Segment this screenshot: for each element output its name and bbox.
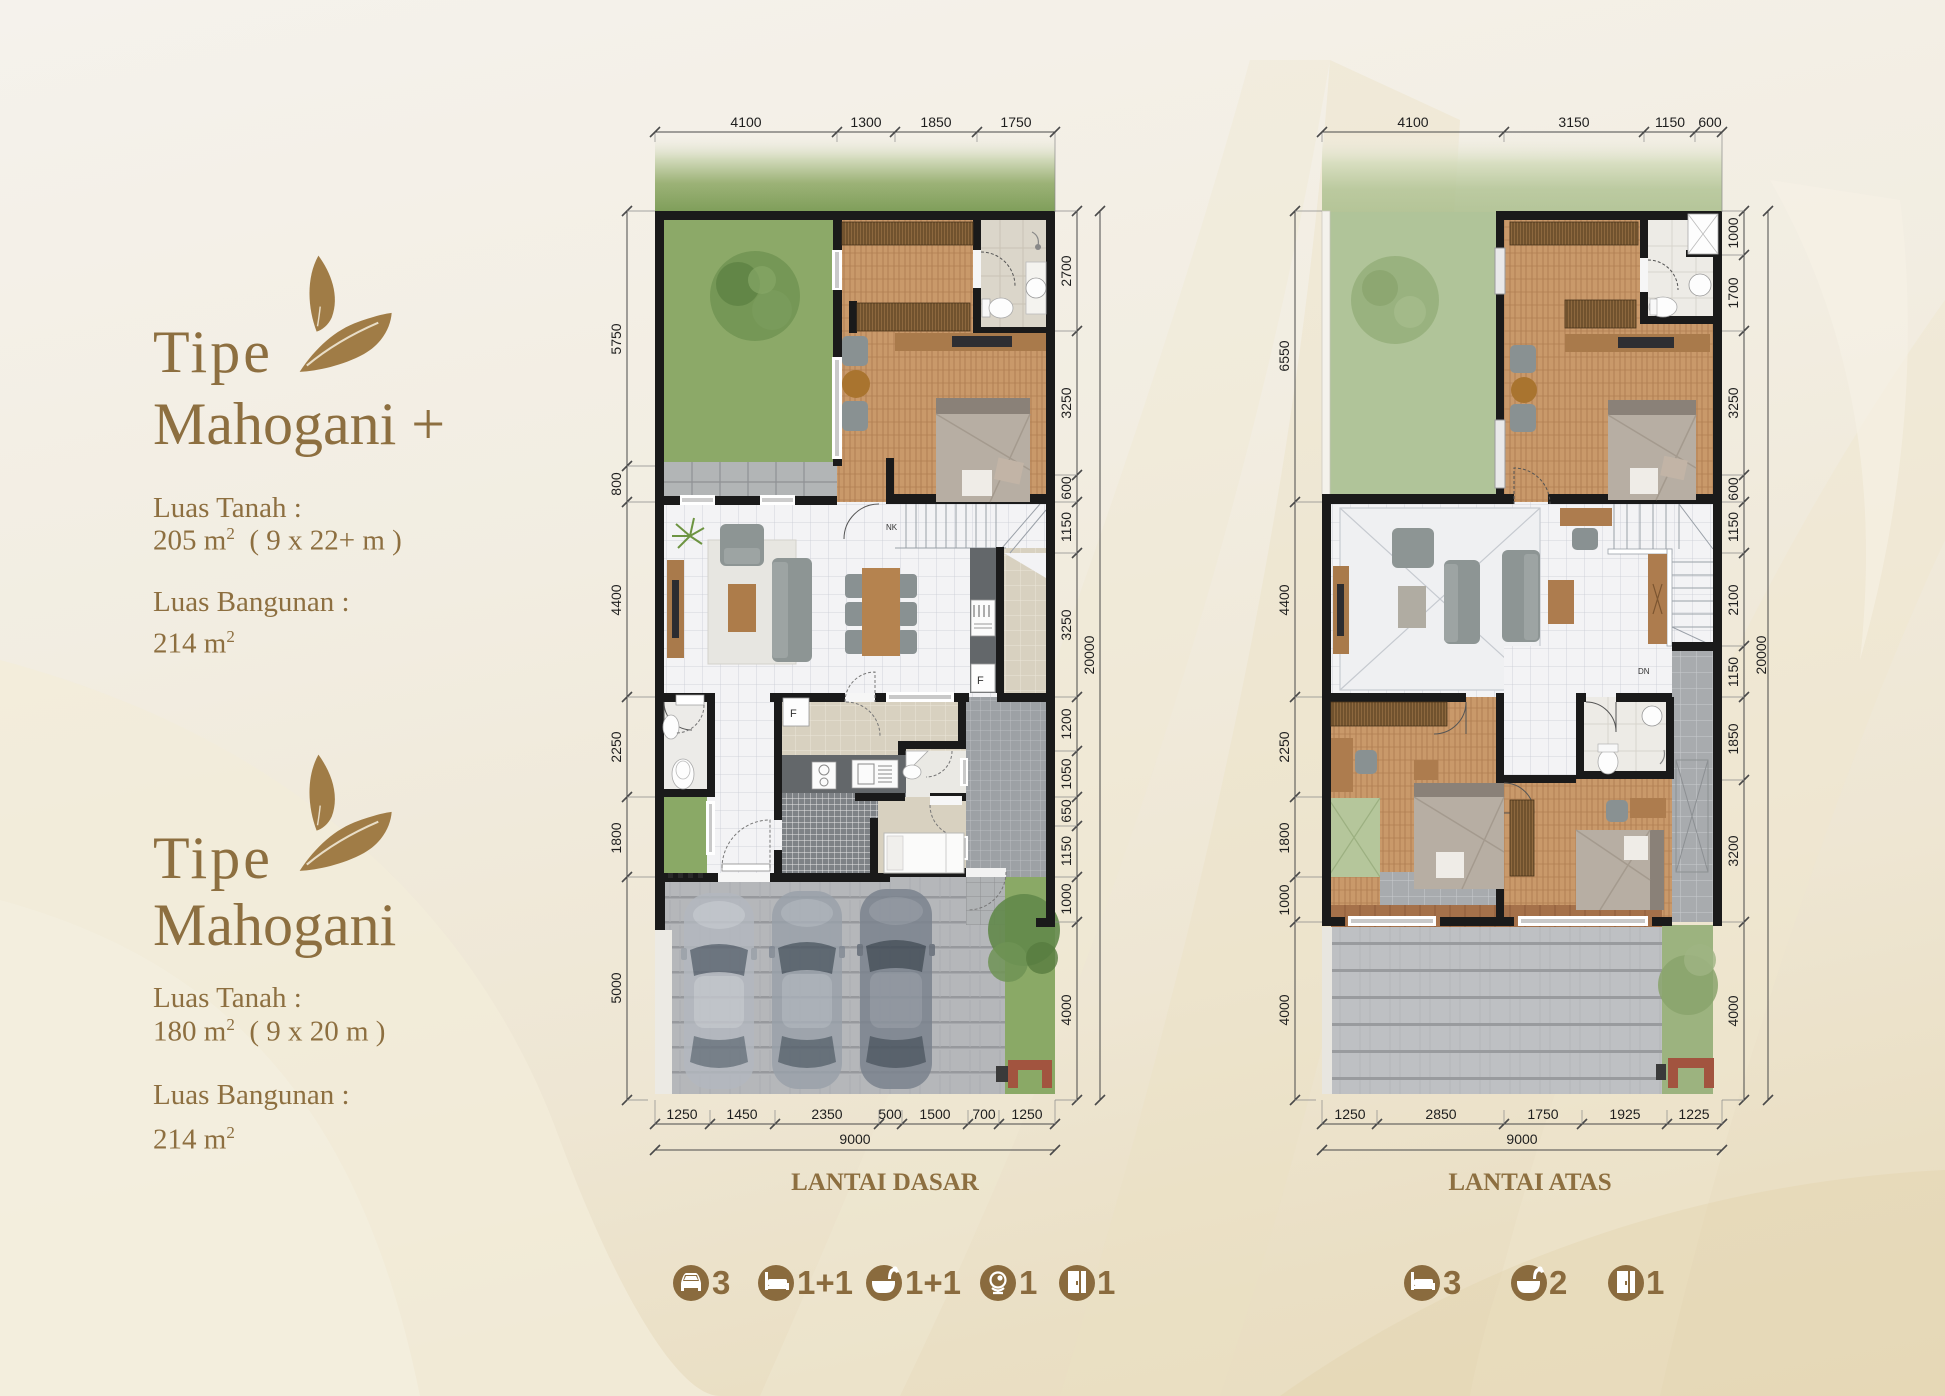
svg-text:1500: 1500: [919, 1106, 950, 1122]
svg-text:4000: 4000: [1058, 994, 1074, 1025]
svg-text:2700: 2700: [1058, 255, 1074, 286]
svg-text:4000: 4000: [1276, 994, 1292, 1025]
svg-text:3250: 3250: [1058, 387, 1074, 418]
svg-text:5000: 5000: [608, 972, 624, 1003]
svg-text:9000: 9000: [1506, 1131, 1537, 1147]
svg-text:3150: 3150: [1558, 114, 1589, 130]
svg-text:1750: 1750: [1527, 1106, 1558, 1122]
svg-text:1000: 1000: [1276, 884, 1292, 915]
svg-text:1800: 1800: [608, 822, 624, 853]
svg-text:1150: 1150: [1058, 836, 1074, 866]
svg-text:3: 3: [1443, 1264, 1461, 1301]
svg-text:1: 1: [1646, 1264, 1664, 1301]
svg-text:1150: 1150: [1725, 512, 1741, 542]
svg-text:2850: 2850: [1425, 1106, 1456, 1122]
svg-text:1225: 1225: [1678, 1106, 1709, 1122]
svg-text:3250: 3250: [1058, 609, 1074, 640]
svg-text:1250: 1250: [666, 1106, 697, 1122]
svg-text:1300: 1300: [850, 114, 881, 130]
svg-text:600: 600: [1698, 114, 1722, 130]
svg-text:1+1: 1+1: [905, 1264, 961, 1301]
svg-text:2250: 2250: [1276, 731, 1292, 762]
svg-text:1700: 1700: [1725, 277, 1741, 308]
svg-text:800: 800: [608, 472, 624, 496]
svg-text:NK: NK: [886, 523, 898, 532]
svg-text:1000: 1000: [1725, 217, 1741, 248]
svg-text:2350: 2350: [811, 1106, 842, 1122]
svg-text:1250: 1250: [1334, 1106, 1365, 1122]
svg-text:4100: 4100: [1397, 114, 1428, 130]
svg-text:1050: 1050: [1058, 758, 1074, 789]
svg-text:1925: 1925: [1609, 1106, 1640, 1122]
svg-text:3250: 3250: [1725, 387, 1741, 418]
svg-text:1450: 1450: [726, 1106, 757, 1122]
svg-text:20000: 20000: [1753, 635, 1769, 674]
svg-text:20000: 20000: [1081, 635, 1097, 674]
svg-text:1800: 1800: [1276, 822, 1292, 853]
svg-text:1150: 1150: [1058, 512, 1074, 542]
svg-text:1850: 1850: [920, 114, 951, 130]
svg-text:1000: 1000: [1058, 883, 1074, 914]
svg-text:650: 650: [1058, 799, 1074, 823]
svg-text:4400: 4400: [1276, 584, 1292, 615]
svg-text:4000: 4000: [1725, 995, 1741, 1026]
svg-text:600: 600: [1058, 476, 1074, 500]
svg-text:1: 1: [1097, 1264, 1115, 1301]
svg-text:500: 500: [878, 1106, 902, 1122]
svg-text:1150: 1150: [1725, 657, 1741, 687]
svg-text:5750: 5750: [608, 323, 624, 354]
svg-text:1150: 1150: [1655, 114, 1685, 130]
svg-text:1200: 1200: [1058, 708, 1074, 739]
svg-text:2100: 2100: [1725, 584, 1741, 615]
svg-text:700: 700: [972, 1106, 996, 1122]
svg-text:F: F: [977, 675, 984, 687]
svg-text:4400: 4400: [608, 584, 624, 615]
svg-text:1: 1: [1019, 1264, 1037, 1301]
svg-text:DN: DN: [1638, 667, 1650, 676]
svg-text:6550: 6550: [1276, 340, 1292, 371]
svg-text:3200: 3200: [1725, 835, 1741, 866]
svg-text:1850: 1850: [1725, 723, 1741, 754]
svg-text:3: 3: [712, 1264, 730, 1301]
svg-text:9000: 9000: [839, 1131, 870, 1147]
svg-text:F: F: [790, 708, 797, 720]
svg-text:600: 600: [1725, 477, 1741, 501]
svg-text:1250: 1250: [1011, 1106, 1042, 1122]
svg-text:1750: 1750: [1000, 114, 1031, 130]
svg-text:1+1: 1+1: [797, 1264, 853, 1301]
svg-text:4100: 4100: [730, 114, 761, 130]
svg-text:2: 2: [1549, 1264, 1567, 1301]
svg-text:2250: 2250: [608, 731, 624, 762]
